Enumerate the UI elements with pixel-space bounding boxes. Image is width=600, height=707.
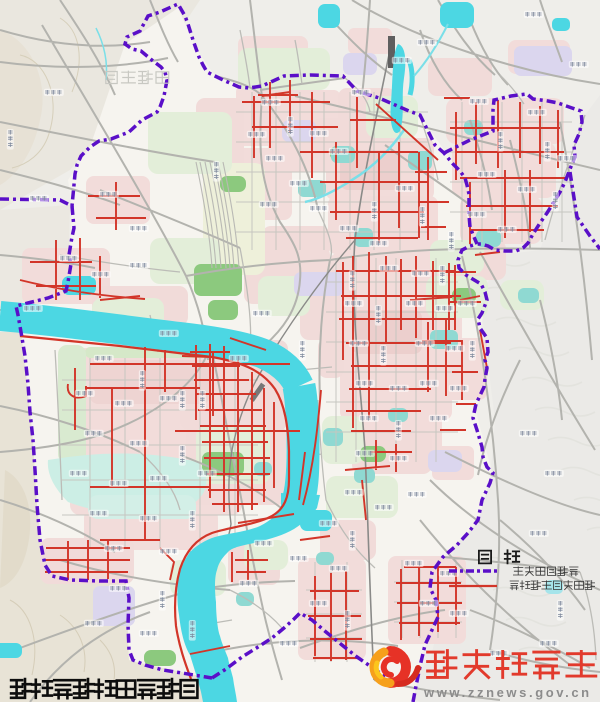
svg-text:www.zznews.gov.cn: www.zznews.gov.cn — [423, 685, 592, 700]
